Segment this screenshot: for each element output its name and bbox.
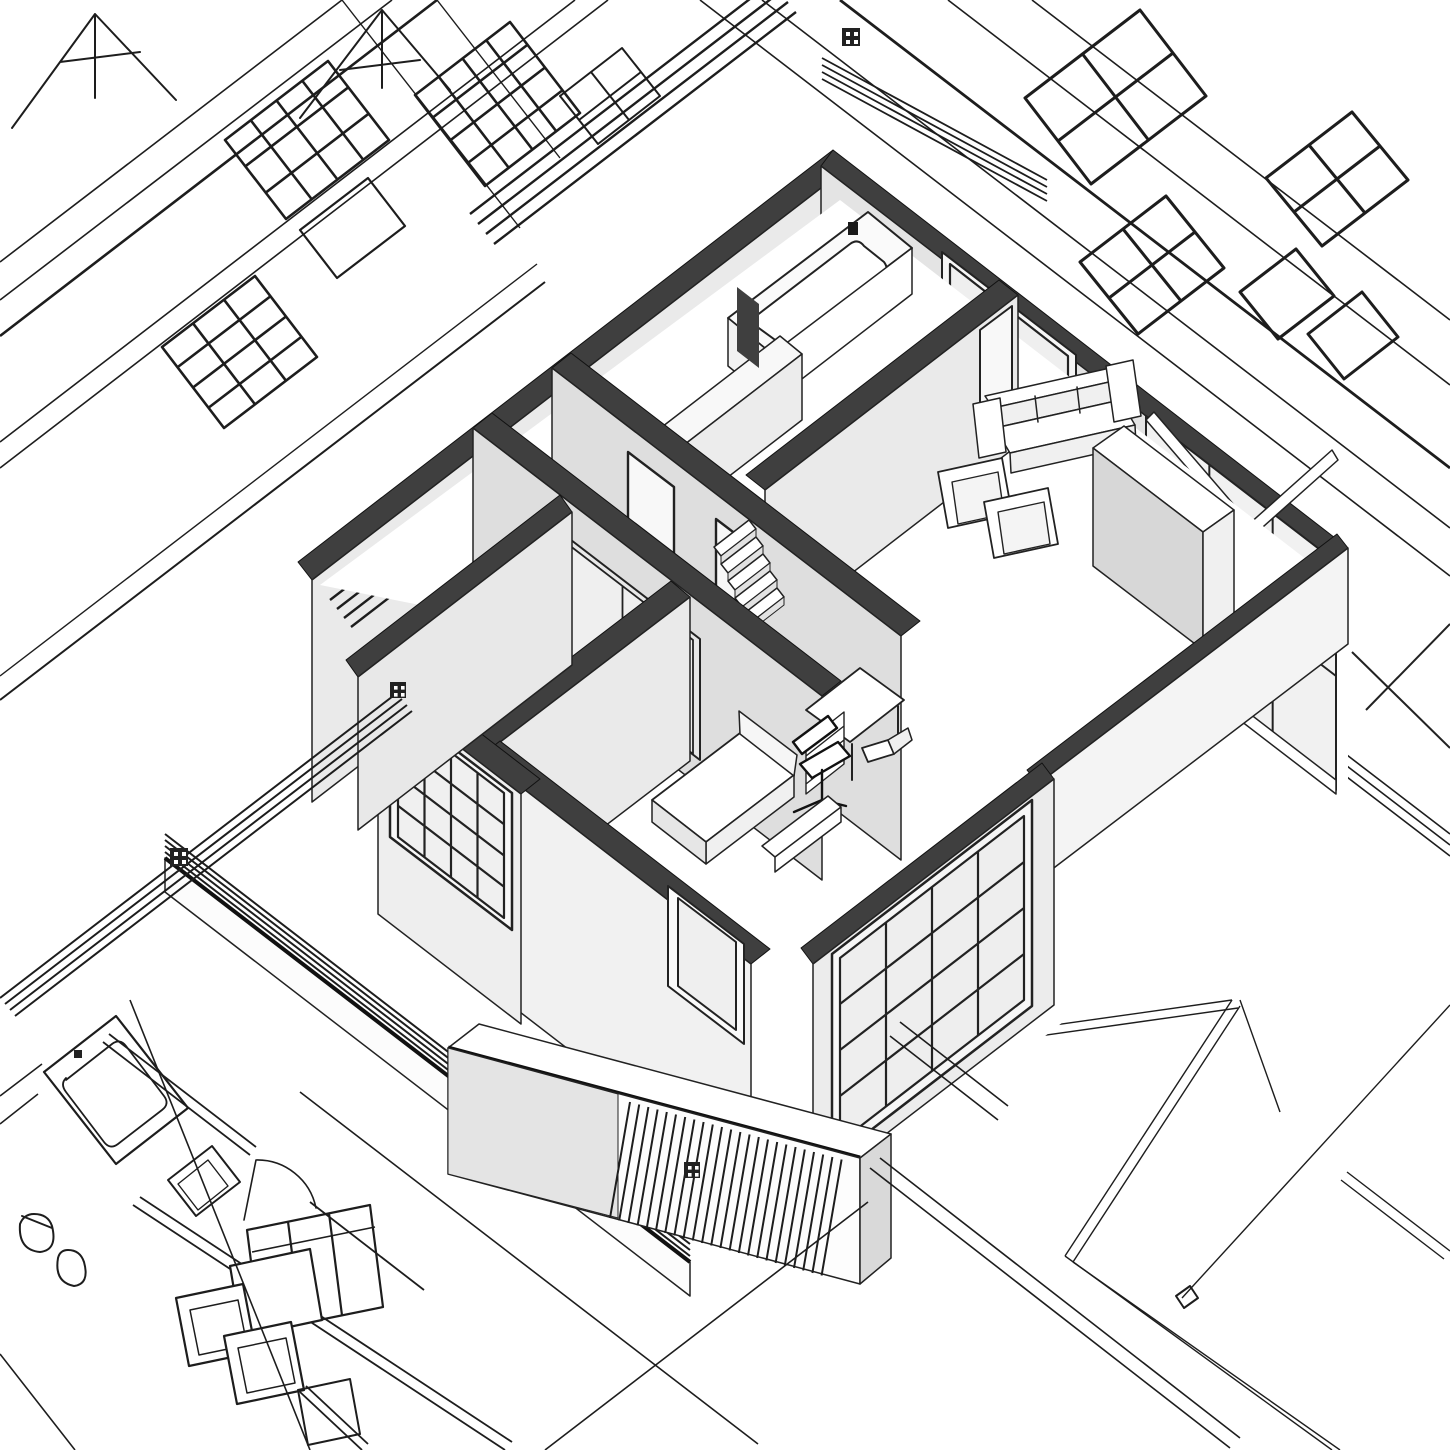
panel-rect (300, 178, 405, 278)
section-line (0, 1354, 75, 1450)
sofa-arm (973, 398, 1006, 458)
ground-line (880, 1158, 1240, 1438)
site-line (1347, 1172, 1450, 1251)
ground-line (870, 1168, 1230, 1448)
grid-window (1080, 196, 1224, 334)
plan-door-arc (244, 1160, 316, 1220)
armchair-seat (998, 502, 1050, 554)
garage-end-face (860, 1134, 891, 1284)
plan-line (0, 1094, 38, 1124)
bathtub-faucet (848, 222, 858, 235)
plan-sofa-back (252, 1227, 375, 1252)
site-line (1182, 1005, 1450, 1298)
plan-wall (310, 1202, 424, 1290)
roof-edge-line (0, 0, 392, 300)
site-line (1240, 1000, 1280, 1112)
grid-window (1266, 112, 1408, 246)
plan-toilet (20, 1214, 54, 1252)
truss-brace-far (1352, 652, 1450, 748)
truss-brace-far (1366, 624, 1450, 710)
blueprint-render-canvas (0, 0, 1450, 1450)
plan-bathtub-faucet (74, 1050, 82, 1058)
plan-line (0, 1064, 42, 1096)
facade-line (437, 0, 560, 158)
roof-edge-line (0, 0, 437, 336)
site-marker (1176, 1286, 1198, 1308)
grid-window (1025, 10, 1206, 184)
section-line (130, 1000, 310, 1450)
plan-rug (298, 1379, 360, 1445)
architectural-3d-cutaway-drawing (0, 0, 1450, 1450)
facade-line (1032, 0, 1450, 320)
plan-wall (306, 1386, 368, 1444)
site-line (1341, 1180, 1444, 1259)
grid-window (225, 61, 389, 219)
site-line (1073, 1262, 1340, 1450)
site-line (1065, 1000, 1232, 1256)
plan-toilet (57, 1250, 85, 1286)
plan-wall (300, 1392, 362, 1450)
truss-triangle (12, 14, 176, 128)
site-line (1073, 1006, 1240, 1262)
